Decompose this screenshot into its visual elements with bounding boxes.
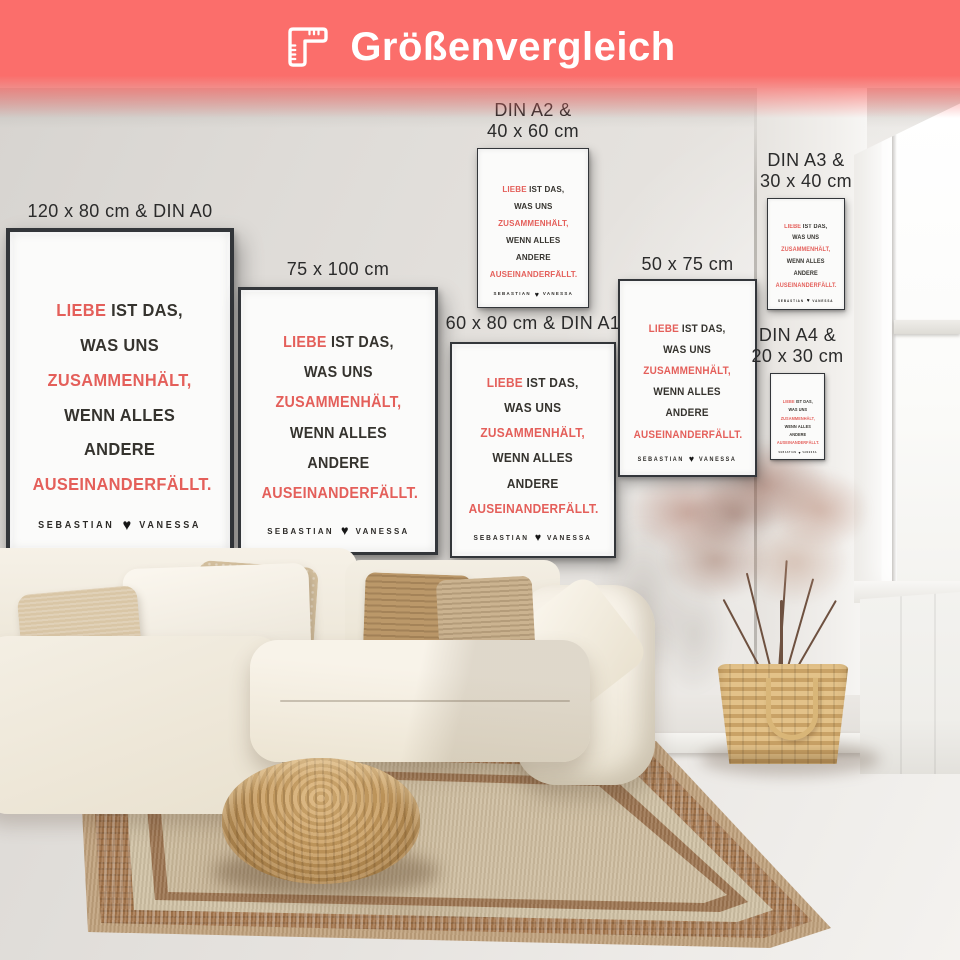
sofa-seam bbox=[280, 700, 570, 702]
ruler-corner-icon bbox=[284, 23, 332, 71]
page-title: Größenvergleich bbox=[350, 25, 675, 70]
room-scene: 120 x 80 cm & DIN A0 Liebe ist das, was … bbox=[0, 0, 960, 960]
header-row: Größenvergleich bbox=[284, 16, 675, 78]
rattan-pouf bbox=[222, 758, 420, 884]
header-banner: Größenvergleich bbox=[0, 0, 960, 118]
sofa bbox=[0, 0, 960, 960]
